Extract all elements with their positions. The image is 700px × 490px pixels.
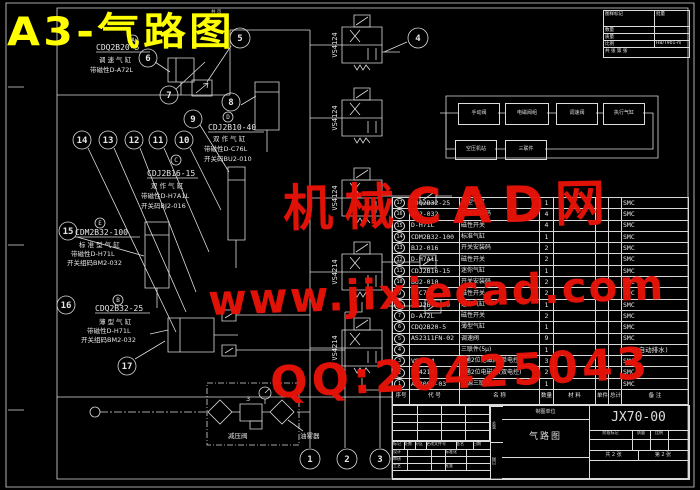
- lubricator-label: 油雾器: [300, 431, 320, 440]
- balloon-17: 17: [118, 357, 136, 375]
- balloon-3: 3: [370, 449, 390, 469]
- part-no: 5: [394, 334, 405, 344]
- balloon-1: 1: [300, 449, 320, 469]
- title-block: 标记 处数 分区 更改文件号 签名 日期 设计 标准化 审核 工艺 批准 签字 …: [392, 405, 690, 480]
- regulator-icon: [240, 404, 262, 421]
- svg-text:1: 1: [307, 455, 312, 465]
- header-remark: 备 注: [622, 390, 689, 405]
- part-code: D-H7A1L: [410, 254, 460, 265]
- company-name: 制图单位: [502, 406, 590, 420]
- svg-text:CDJ2B10-40: CDJ2B10-40: [208, 123, 256, 132]
- balloon-14: 14: [73, 131, 91, 149]
- corner-value: HB/T901-m: [655, 41, 689, 47]
- svg-text:8: 8: [228, 98, 233, 108]
- cylinder-cdj2b16: [228, 167, 245, 240]
- parts-row: 6 CDQ2B20-5 薄型气缸 1 SMC: [393, 322, 689, 333]
- part-qty: 2: [540, 243, 554, 254]
- annotation-cdj2b16: CDJ2B16-15 双 作 气 缸 带磁性D-H7A1L 开关码BJ2-016: [141, 169, 198, 210]
- svg-text:开关码BU2-010: 开关码BU2-010: [204, 154, 252, 163]
- svg-text:CDM2B32-100: CDM2B32-100: [75, 228, 128, 237]
- corner-table: 图样标记 批量 数量 质量 比例 HB/T901-m 共 张 第 张: [603, 10, 690, 58]
- corner-label: 质量: [604, 34, 655, 40]
- balloon-13: 13: [99, 131, 117, 149]
- cylinder-cdm2b32: [145, 222, 169, 288]
- drawing-sheet: VS4124 VS4124 VS4124 VS4214: [0, 0, 700, 490]
- svg-text:开关组码BM2-032: 开关组码BM2-032: [81, 335, 136, 344]
- part-no: 13: [394, 243, 405, 253]
- svg-text:双 作 气 缸: 双 作 气 缸: [151, 181, 184, 190]
- regulator-label: 减压阀: [228, 431, 248, 440]
- valve-symbol-2: VS4124: [331, 88, 382, 143]
- svg-text:E: E: [98, 220, 102, 227]
- part-name: 薄型气缸: [460, 322, 540, 333]
- flow-diagram-lines: [440, 96, 658, 158]
- svg-text:17: 17: [122, 362, 133, 372]
- svg-text:13: 13: [103, 136, 114, 146]
- svg-text:12: 12: [129, 136, 140, 146]
- tag-letter-d: D: [223, 112, 233, 122]
- annotation-cdj2b10: CDJ2B10-40 双 作 气 缸 带磁性D-C76L 开关码BU2-010: [204, 123, 264, 163]
- svg-text:9: 9: [190, 115, 195, 125]
- svg-text:D: D: [226, 114, 230, 121]
- svg-text:带磁性D-H7A1L: 带磁性D-H7A1L: [141, 191, 189, 200]
- cylinder-cdj2b10: [255, 82, 279, 130]
- svg-text:带磁性D-A72L: 带磁性D-A72L: [90, 65, 133, 74]
- svg-text:标 准 型 气 缸: 标 准 型 气 缸: [79, 240, 120, 249]
- svg-text:2: 2: [344, 455, 349, 465]
- part-material: [554, 322, 596, 333]
- part-no-cell: 5: [393, 333, 410, 344]
- part-vendor: SMC: [622, 209, 689, 220]
- part-no-cell: 12: [393, 254, 410, 265]
- balloon-10: 10: [175, 131, 193, 149]
- part-vendor: SMC: [622, 243, 689, 254]
- svg-text:B: B: [116, 297, 120, 304]
- air-source-icon: [90, 407, 100, 417]
- balloon-9: 9: [184, 110, 202, 128]
- tag-letter-c: C: [171, 155, 181, 165]
- balloon-11: 11: [149, 131, 167, 149]
- corner-value: [655, 27, 689, 33]
- drawing-title: 气路图: [502, 419, 590, 458]
- page-title: A3-气路图: [7, 0, 235, 56]
- svg-text:带磁性D-C76L: 带磁性D-C76L: [204, 144, 248, 153]
- part-vendor: SMC: [622, 198, 689, 209]
- part-code: BJ2-016: [410, 243, 460, 254]
- svg-text:带磁性D-H71L: 带磁性D-H71L: [71, 249, 115, 258]
- parts-row: 13 BJ2-016 开关安装码 2 SMC: [393, 243, 689, 254]
- part-code: AS2311FN-02: [410, 333, 460, 344]
- svg-text:3: 3: [377, 455, 382, 465]
- balloon-8: 8: [222, 93, 240, 111]
- drawing-number: JX70-00: [589, 406, 689, 431]
- corner-label: 图样标记: [604, 11, 655, 26]
- frl-number: 3: [246, 395, 250, 403]
- svg-text:4: 4: [415, 34, 421, 44]
- svg-text:15: 15: [63, 227, 74, 237]
- balloon-12: 12: [125, 131, 143, 149]
- svg-text:11: 11: [153, 136, 164, 146]
- svg-text:开关码BJ2-016: 开关码BJ2-016: [141, 201, 186, 210]
- svg-text:开关组码BM2-032: 开关组码BM2-032: [67, 258, 122, 267]
- svg-text:16: 16: [61, 301, 72, 311]
- part-material: [554, 243, 596, 254]
- part-weight-total: [609, 310, 622, 321]
- svg-text:CDJ2B16-15: CDJ2B16-15: [147, 169, 195, 178]
- part-no-cell: 6: [393, 322, 410, 333]
- corner-footer: 共 张 第 张: [604, 48, 689, 57]
- svg-text:14: 14: [77, 136, 88, 146]
- corner-value: [655, 34, 689, 40]
- corner-value: 批量: [655, 11, 689, 26]
- svg-text:双 作 气 缸: 双 作 气 缸: [213, 134, 246, 143]
- header-weight-total: 总计: [609, 390, 622, 405]
- part-weight-each: [596, 243, 609, 254]
- svg-text:C: C: [174, 157, 178, 164]
- svg-text:10: 10: [179, 136, 190, 146]
- part-weight-total: [609, 243, 622, 254]
- part-vendor: SMC: [622, 231, 689, 242]
- svg-text:薄 型 气 缸: 薄 型 气 缸: [99, 317, 132, 326]
- part-no-cell: 13: [393, 243, 410, 254]
- part-qty: 1: [540, 322, 554, 333]
- svg-text:调 速 气 缸: 调 速 气 缸: [99, 55, 132, 64]
- part-no: 6: [394, 322, 405, 332]
- svg-text:CDQ2B32-25: CDQ2B32-25: [95, 304, 143, 313]
- watermark-site-name: 机械CAD网: [282, 163, 616, 241]
- part-name: 调速阀: [460, 333, 540, 344]
- tag-letter-e: E: [95, 218, 105, 228]
- valve-label: VS4124: [331, 32, 339, 57]
- part-weight-total: [609, 322, 622, 333]
- corner-label: 数量: [604, 27, 655, 33]
- part-name: 开关安装码: [460, 243, 540, 254]
- balloon-2: 2: [337, 449, 357, 469]
- part-vendor: SMC: [622, 310, 689, 321]
- svg-text:7: 7: [166, 91, 171, 101]
- annotation-cdq2b32: CDQ2B32-25 薄 型 气 缸 带磁性D-H71L 开关组码BM2-032: [81, 304, 150, 344]
- balloon-16: 16: [57, 296, 75, 314]
- valve-symbol-1: VS4124: [331, 15, 382, 70]
- part-code: CDQ2B20-5: [410, 322, 460, 333]
- cylinder-cdq2b32: [168, 318, 214, 352]
- filter-icon: [208, 400, 232, 424]
- corner-label: 比例: [604, 41, 655, 47]
- revision-grid: [393, 406, 491, 442]
- valve-label: VS4124: [331, 105, 339, 130]
- part-weight-each: [596, 310, 609, 321]
- svg-text:5: 5: [237, 34, 242, 44]
- part-vendor: SMC: [622, 322, 689, 333]
- part-name: 磁性开关: [460, 254, 540, 265]
- part-vendor: SMC: [622, 220, 689, 231]
- balloon-4: 4: [408, 28, 428, 48]
- part-weight-each: [596, 322, 609, 333]
- svg-text:带磁性D-H71L: 带磁性D-H71L: [87, 326, 131, 335]
- cylinder-cdq2b20: [168, 58, 194, 82]
- part-no: 12: [394, 255, 405, 265]
